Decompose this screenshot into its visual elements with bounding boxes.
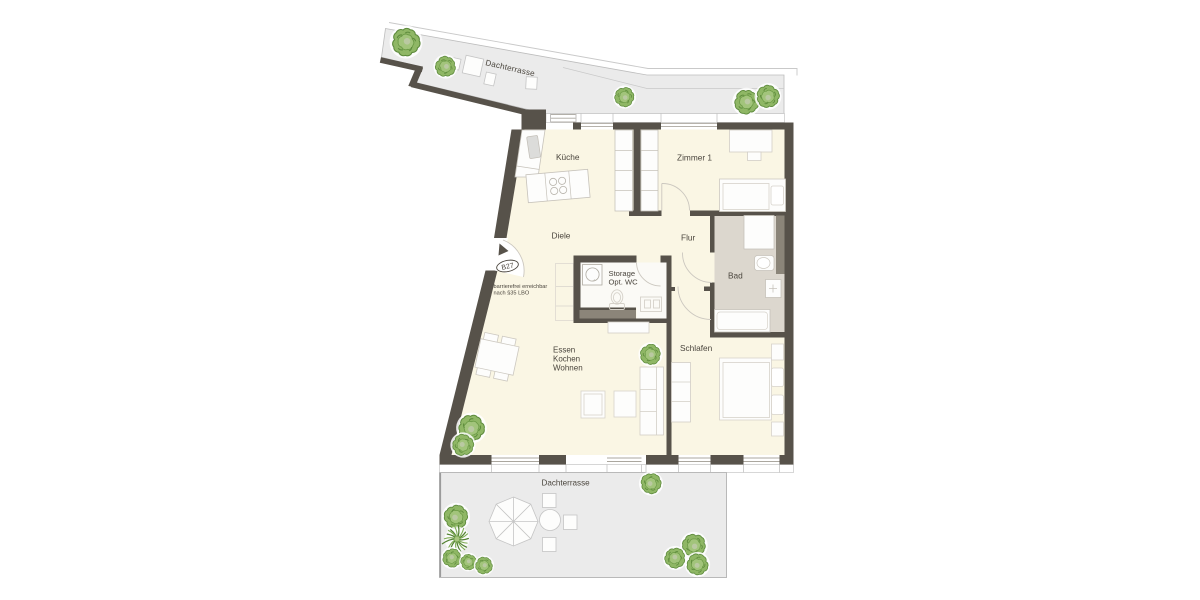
svg-text:Schlafen: Schlafen (680, 343, 713, 353)
svg-text:Küche: Küche (556, 152, 580, 162)
svg-text:barrierefrei erreichbar: barrierefrei erreichbar (494, 284, 548, 290)
svg-text:Flur: Flur (681, 233, 696, 243)
svg-text:Diele: Diele (552, 231, 571, 241)
svg-text:nach §35 LBO: nach §35 LBO (494, 291, 530, 297)
svg-text:Essen: Essen (553, 346, 575, 355)
svg-text:Dachterrasse: Dachterrasse (542, 479, 591, 488)
svg-text:Opt. WC: Opt. WC (609, 278, 639, 287)
svg-text:Zimmer 1: Zimmer 1 (677, 153, 712, 163)
svg-text:Wohnen: Wohnen (553, 364, 583, 373)
svg-text:Bad: Bad (728, 271, 743, 281)
svg-text:Kochen: Kochen (553, 355, 580, 364)
